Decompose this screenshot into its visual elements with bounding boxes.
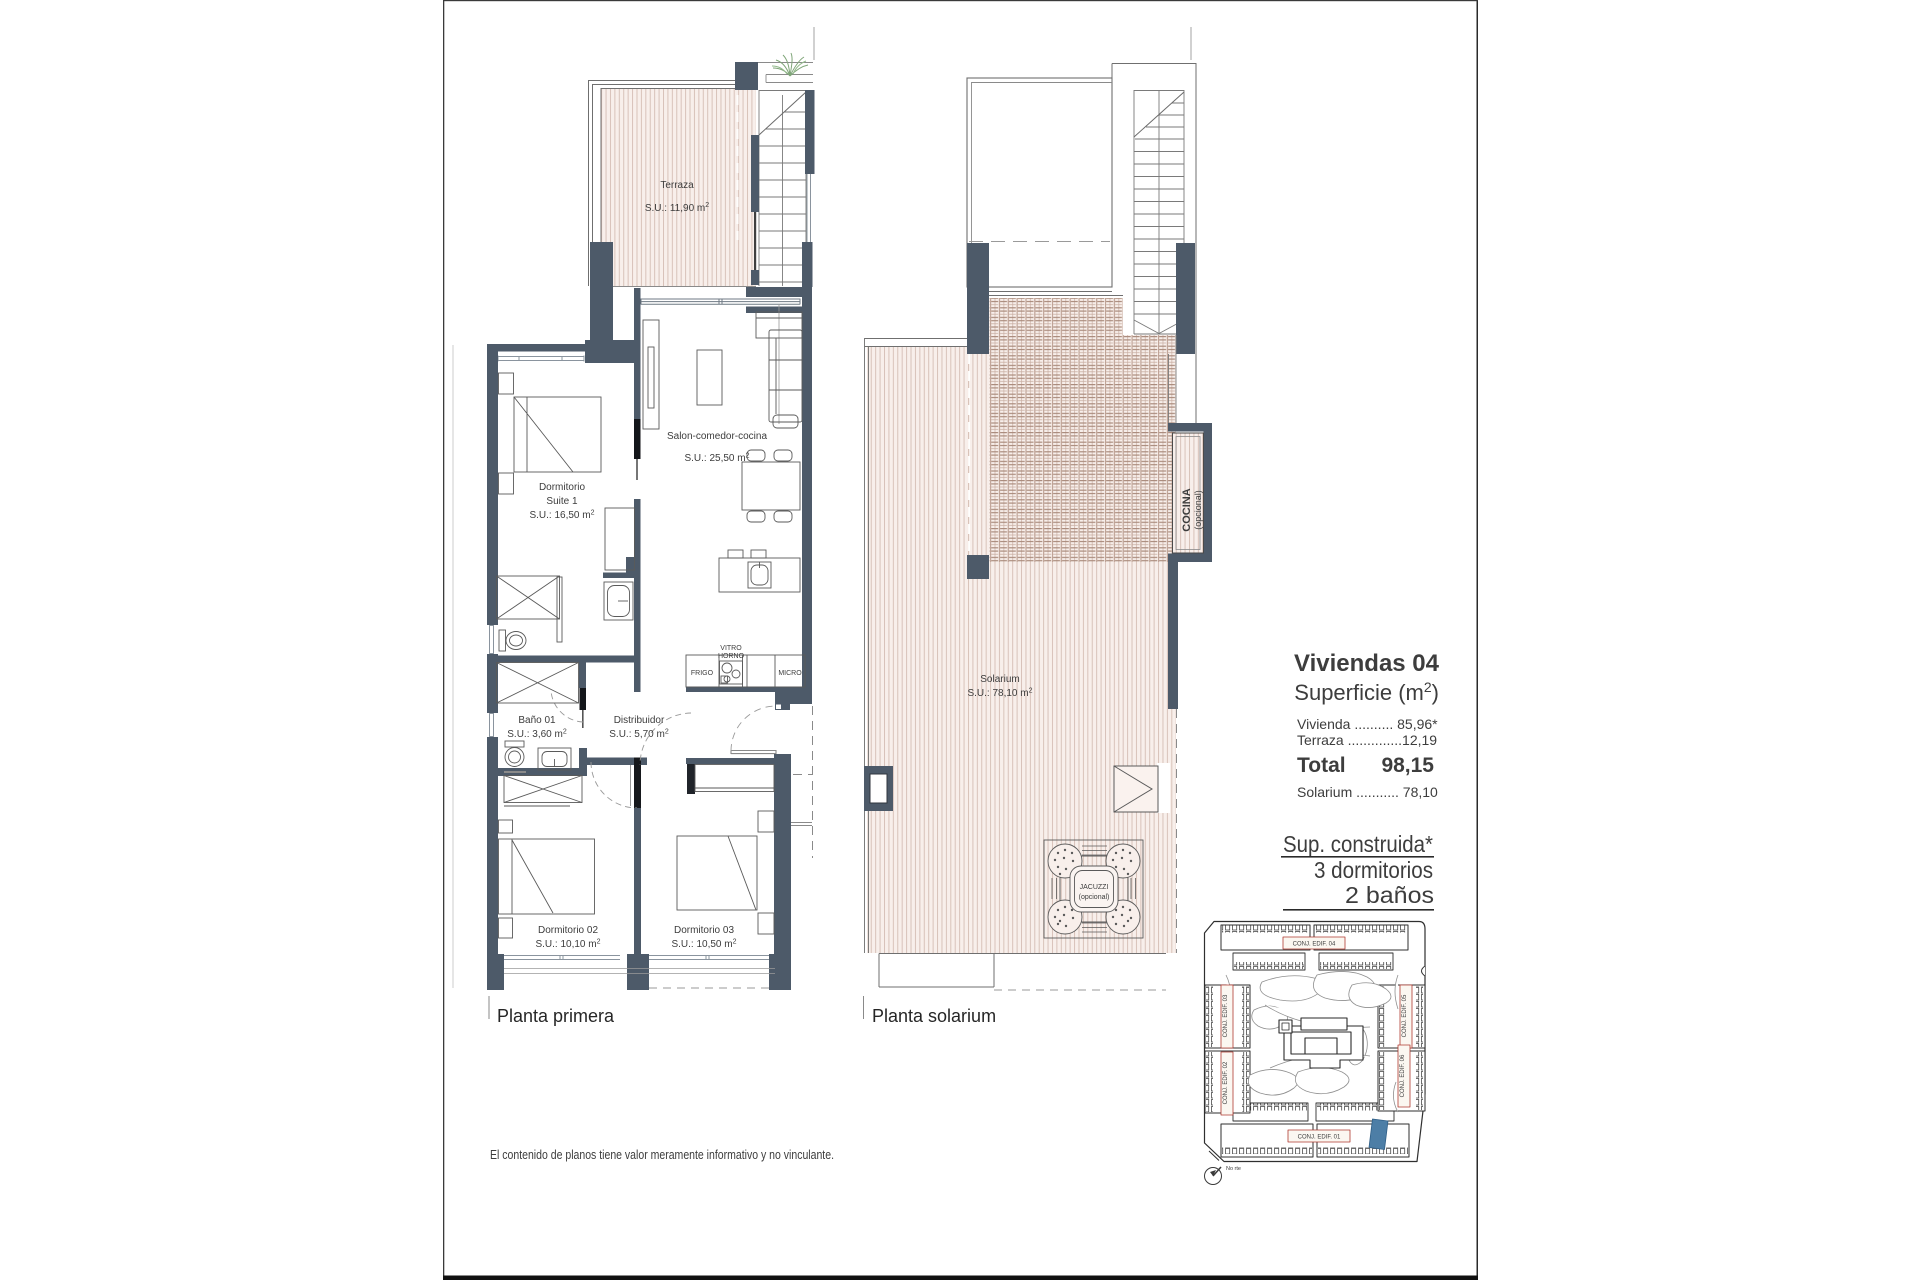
svg-text:JACUZZI: JACUZZI <box>1080 884 1109 891</box>
svg-text:Solarium: Solarium <box>980 674 1019 685</box>
svg-text:Planta primera: Planta primera <box>497 1006 615 1026</box>
svg-text:COCINA: COCINA <box>1181 488 1193 531</box>
svg-text:Solarium ........... 78,10: Solarium ........... 78,10 <box>1297 784 1438 800</box>
svg-text:Superficie (m2): Superficie (m2) <box>1294 679 1439 705</box>
svg-text:FRIGO: FRIGO <box>691 670 714 677</box>
svg-text:S.U.: 11,90 m2: S.U.: 11,90 m2 <box>645 202 709 214</box>
svg-text:MICRO: MICRO <box>778 670 802 677</box>
svg-text:CONJ. EDIF. 01: CONJ. EDIF. 01 <box>1298 1135 1341 1141</box>
svg-text:Suite 1: Suite 1 <box>546 496 578 507</box>
svg-text:CONJ. EDIF. 06: CONJ. EDIF. 06 <box>1400 1054 1406 1097</box>
svg-text:CONJ. EDIF. 04: CONJ. EDIF. 04 <box>1293 942 1336 948</box>
svg-text:S.U.: 5,70 m2: S.U.: 5,70 m2 <box>609 729 669 741</box>
svg-text:VITRO: VITRO <box>720 645 742 652</box>
svg-text:Baño 01: Baño 01 <box>518 715 556 726</box>
svg-text:El contenido de planos tiene v: El contenido de planos tiene valor meram… <box>490 1147 834 1162</box>
svg-text:S.U.: 10,10 m2: S.U.: 10,10 m2 <box>535 939 600 951</box>
svg-text:Vivienda .......... 85,96*: Vivienda .......... 85,96* <box>1297 716 1438 732</box>
svg-text:Sup. construida*: Sup. construida* <box>1283 831 1433 857</box>
svg-text:S.U.: 3,60 m2: S.U.: 3,60 m2 <box>507 729 567 741</box>
svg-text:S.U.: 10,50 m2: S.U.: 10,50 m2 <box>671 939 736 951</box>
svg-text:CONJ. EDIF. 03: CONJ. EDIF. 03 <box>1223 994 1229 1037</box>
svg-text:CONJ. EDIF. 02: CONJ. EDIF. 02 <box>1223 1061 1229 1104</box>
svg-text:Planta solarium: Planta solarium <box>872 1006 996 1026</box>
svg-text:Dormitorio: Dormitorio <box>539 482 586 493</box>
svg-text:2 baños: 2 baños <box>1345 882 1434 908</box>
svg-text:Dormitorio 03: Dormitorio 03 <box>674 925 734 936</box>
svg-text:Terraza: Terraza <box>660 180 694 191</box>
svg-text:No rte: No rte <box>1226 1166 1241 1172</box>
svg-text:98,15: 98,15 <box>1381 754 1434 777</box>
svg-text:(opcional): (opcional) <box>1079 894 1110 901</box>
svg-text:Distribuidor: Distribuidor <box>614 715 665 726</box>
svg-text:(opcional): (opcional) <box>1193 490 1203 530</box>
svg-text:Total: Total <box>1297 754 1346 777</box>
svg-text:Dormitorio 02: Dormitorio 02 <box>538 925 598 936</box>
svg-text:3 dormitorios: 3 dormitorios <box>1314 857 1433 883</box>
svg-text:HORNO: HORNO <box>718 653 745 660</box>
svg-text:S.U.: 78,10 m2: S.U.: 78,10 m2 <box>967 688 1032 700</box>
svg-text:Viviendas 04: Viviendas 04 <box>1294 650 1440 677</box>
svg-text:S.U.: 16,50 m2: S.U.: 16,50 m2 <box>529 510 594 522</box>
svg-text:Salon-comedor-cocina: Salon-comedor-cocina <box>667 431 767 442</box>
svg-text:CONJ. EDIF. 05: CONJ. EDIF. 05 <box>1402 994 1408 1037</box>
svg-text:S.U.: 25,50 m2: S.U.: 25,50 m2 <box>684 453 749 465</box>
svg-text:Terraza ..............12,19: Terraza ..............12,19 <box>1297 732 1437 748</box>
